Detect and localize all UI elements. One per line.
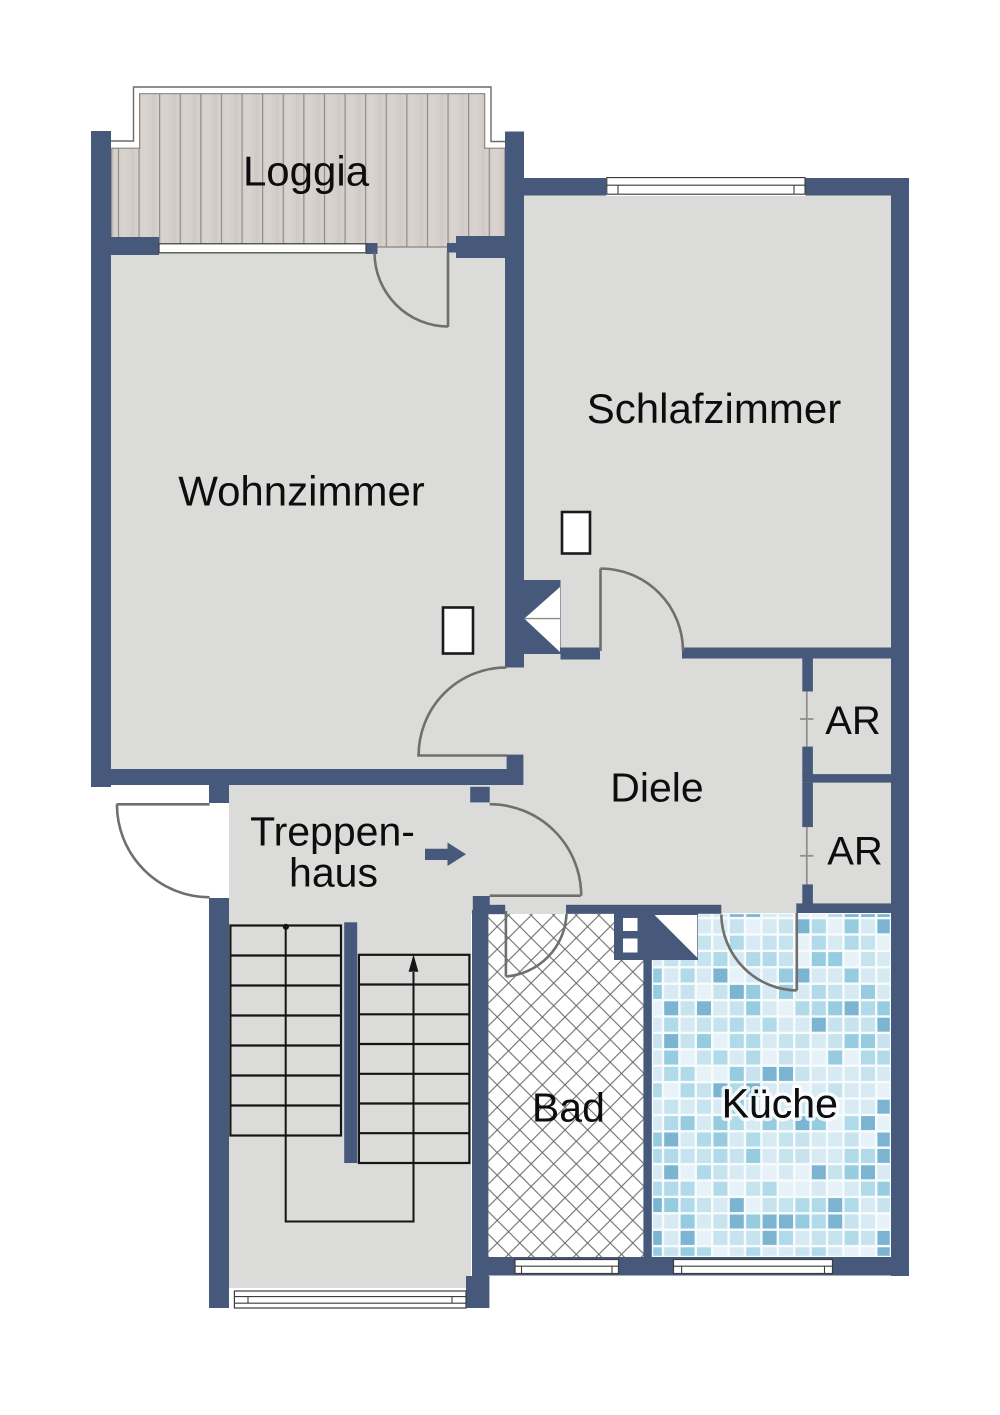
svg-text:Loggia: Loggia (243, 148, 370, 195)
svg-text:AR: AR (827, 830, 883, 874)
svg-text:Diele: Diele (610, 765, 703, 811)
svg-text:Schlafzimmer: Schlafzimmer (587, 385, 841, 432)
svg-text:Bad: Bad (532, 1084, 605, 1130)
svg-text:Wohnzimmer: Wohnzimmer (178, 468, 425, 515)
svg-text:AR: AR (825, 699, 881, 743)
svg-text:Treppen-: Treppen- (250, 809, 415, 855)
svg-text:haus: haus (289, 850, 378, 896)
svg-text:Küche: Küche (722, 1081, 838, 1127)
